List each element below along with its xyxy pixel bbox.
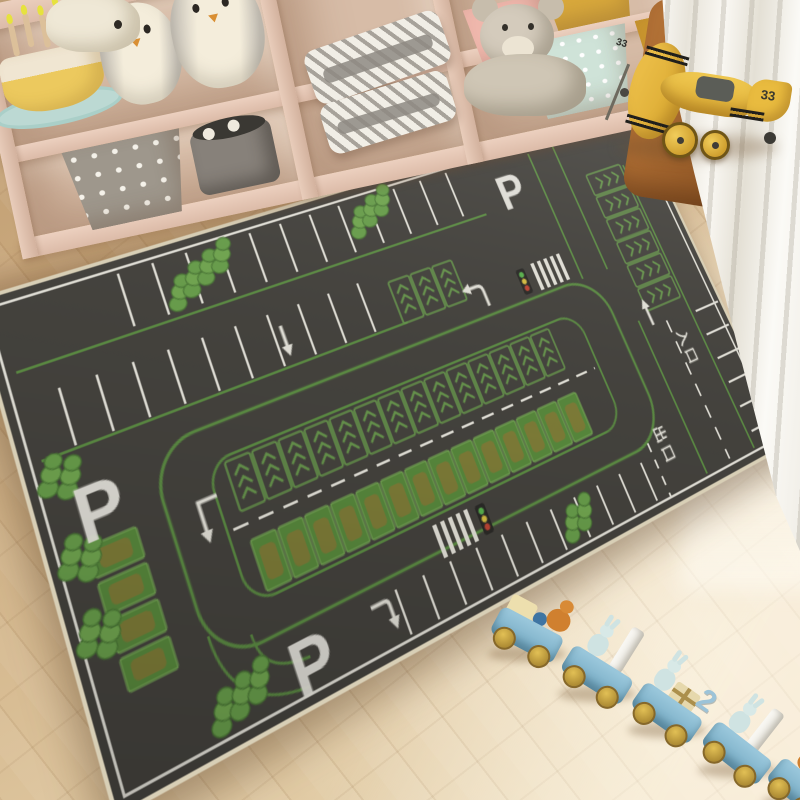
train-car [700, 720, 774, 787]
teddy-bear [450, 0, 608, 116]
airplane-tail-number: 33 [760, 87, 777, 104]
airplane-tailwheel [764, 132, 776, 144]
playroom-scene: P P P 入口 出口 [0, 0, 800, 800]
airplane-wing-number: 33 [615, 37, 629, 51]
toy-airplane: 33 33 [596, 36, 800, 168]
airplane-wheel [700, 130, 730, 160]
airplane-wheel [662, 122, 698, 158]
toy-train: 2 [478, 598, 800, 800]
plush-toy [46, 0, 140, 52]
